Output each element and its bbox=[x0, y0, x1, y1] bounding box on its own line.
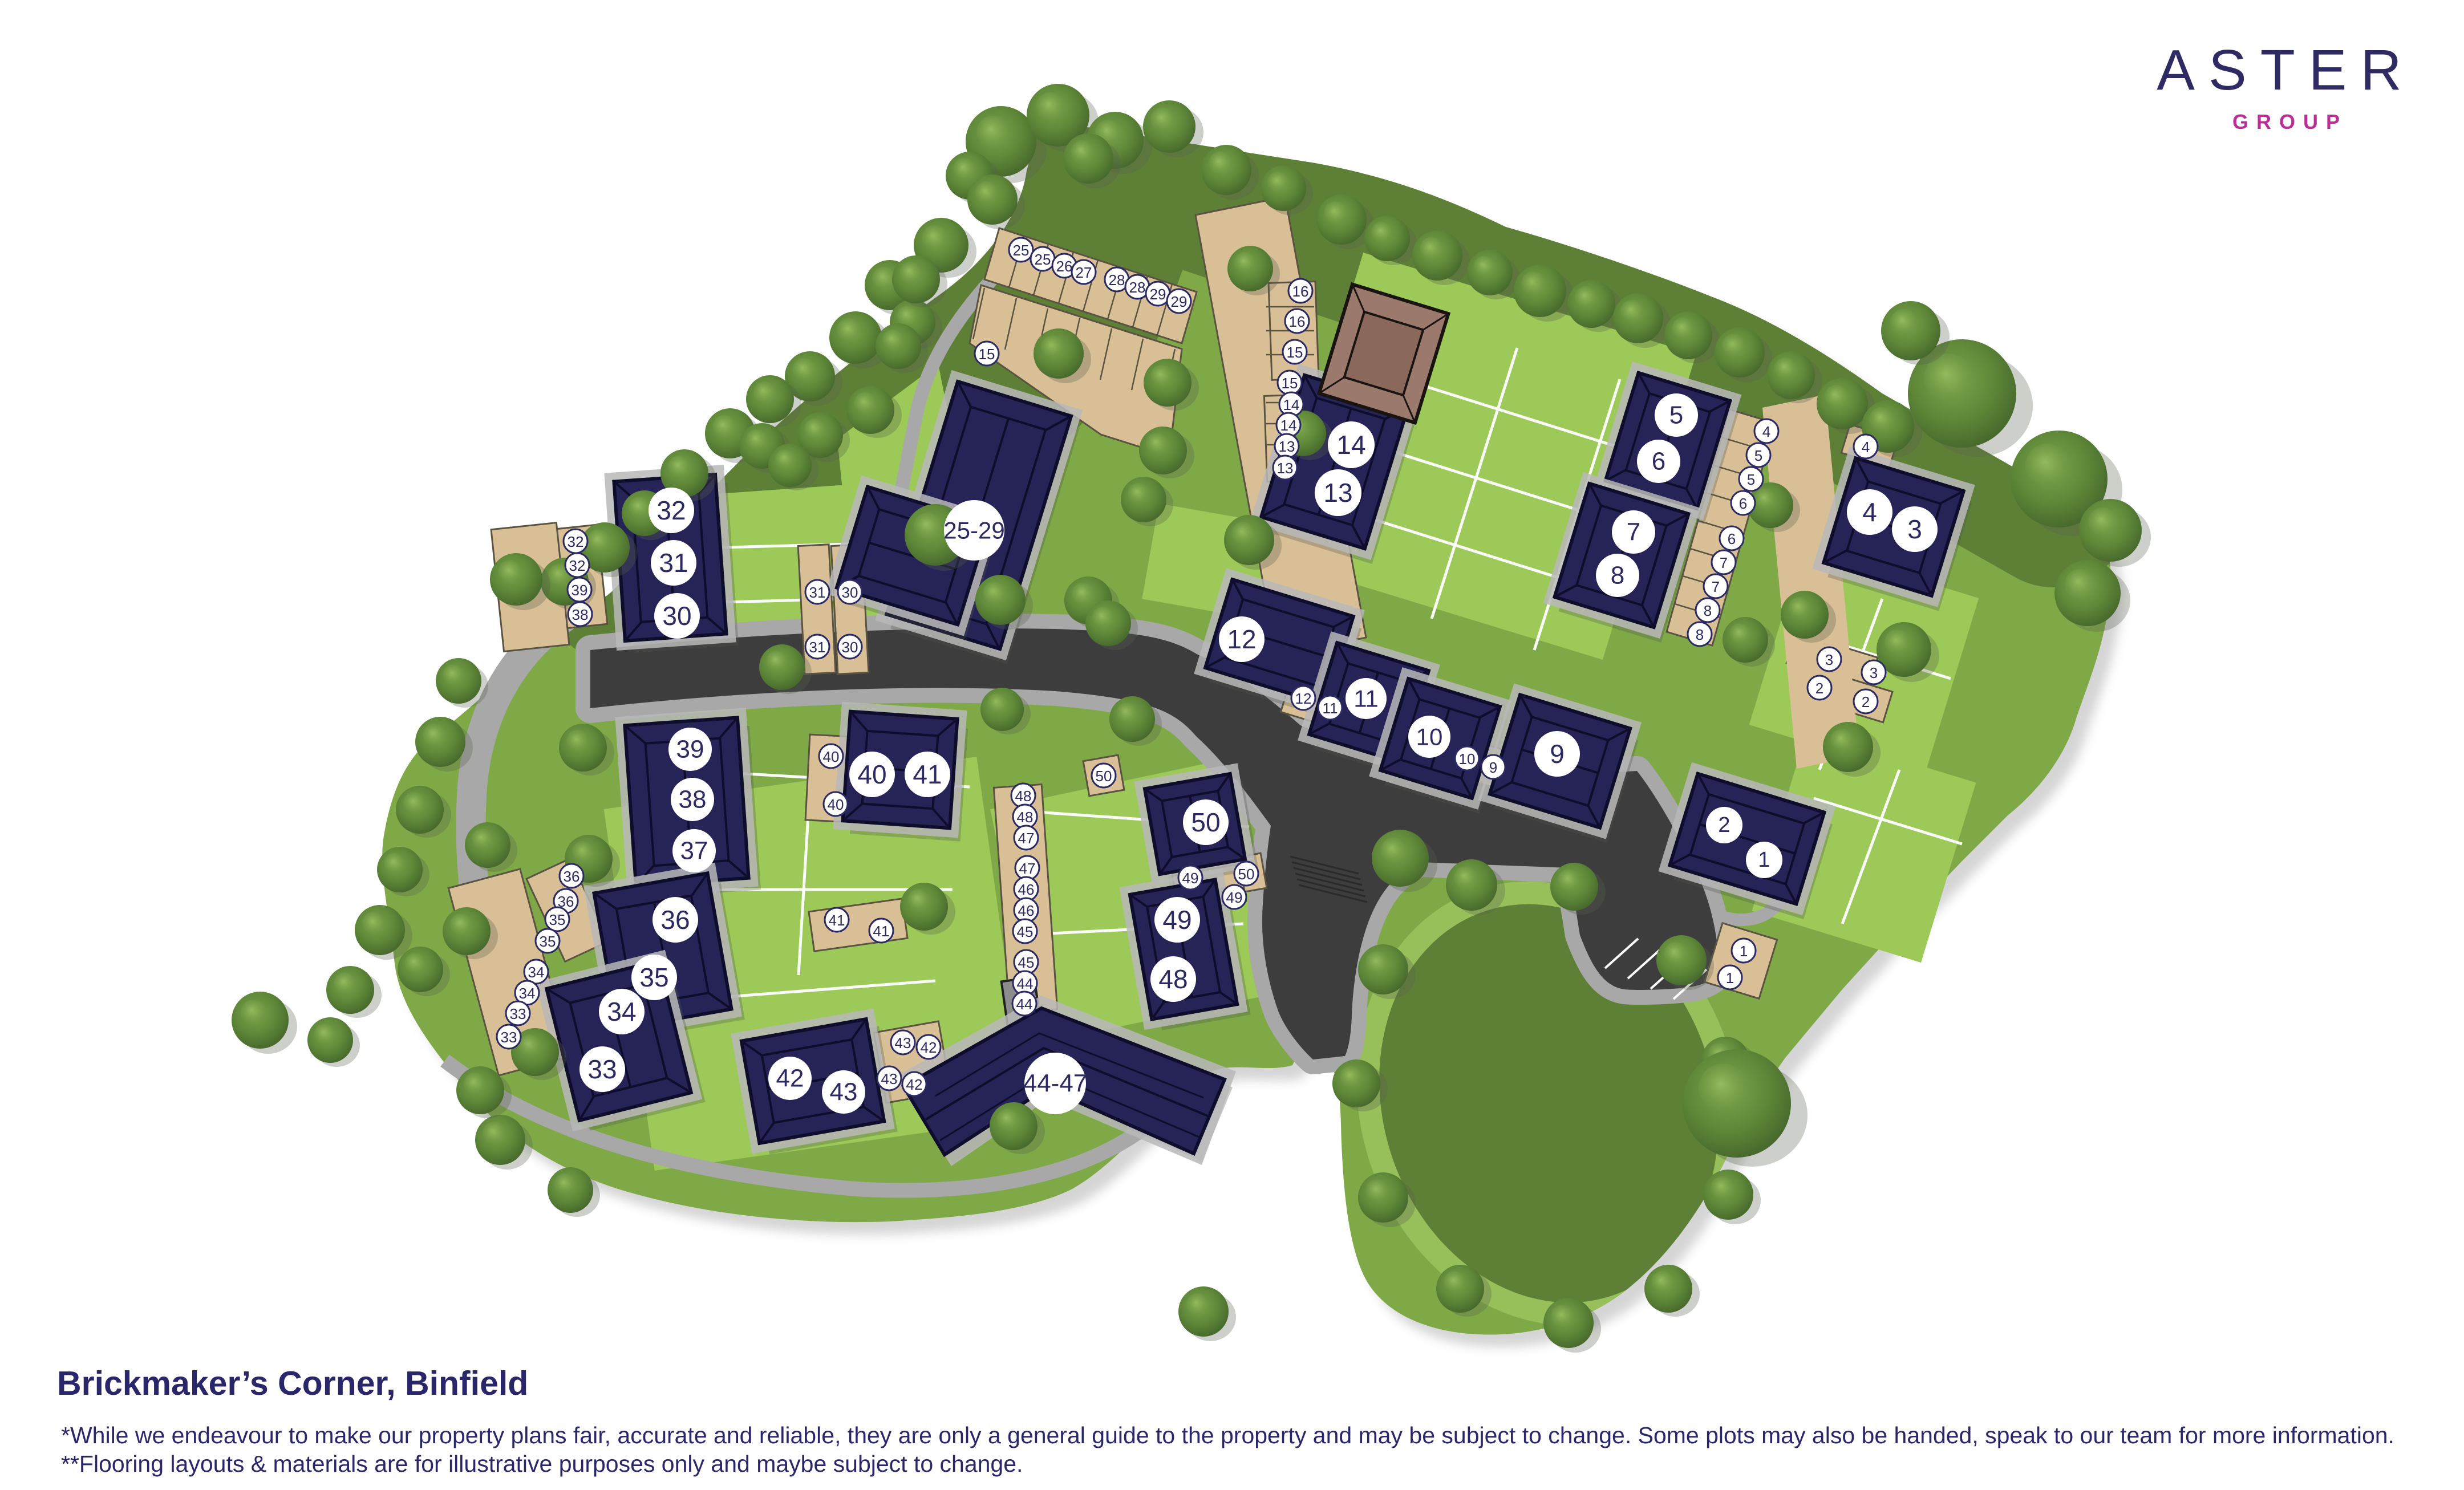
svg-text:30: 30 bbox=[842, 584, 858, 601]
svg-text:ASTER: ASTER bbox=[2157, 38, 2415, 102]
svg-text:3: 3 bbox=[1825, 651, 1833, 668]
svg-text:8: 8 bbox=[1611, 562, 1624, 590]
svg-text:37: 37 bbox=[680, 837, 708, 865]
svg-text:32: 32 bbox=[569, 557, 586, 574]
svg-text:10: 10 bbox=[1459, 750, 1476, 768]
svg-text:33: 33 bbox=[510, 1005, 526, 1022]
svg-text:29: 29 bbox=[1171, 293, 1188, 310]
svg-text:13: 13 bbox=[1323, 478, 1352, 508]
svg-text:6: 6 bbox=[1739, 495, 1747, 512]
svg-text:39: 39 bbox=[676, 736, 704, 764]
svg-text:31: 31 bbox=[809, 639, 826, 656]
svg-text:26: 26 bbox=[1056, 258, 1073, 275]
svg-text:48: 48 bbox=[1015, 787, 1032, 805]
svg-text:14: 14 bbox=[1283, 396, 1300, 413]
svg-text:33: 33 bbox=[587, 1054, 617, 1084]
svg-text:30: 30 bbox=[842, 639, 858, 656]
svg-text:43: 43 bbox=[830, 1078, 858, 1106]
svg-text:46: 46 bbox=[1018, 902, 1035, 919]
svg-text:49: 49 bbox=[1162, 905, 1192, 935]
svg-text:16: 16 bbox=[1289, 313, 1306, 330]
svg-text:31: 31 bbox=[809, 584, 826, 601]
svg-text:47: 47 bbox=[1018, 830, 1035, 847]
svg-text:35: 35 bbox=[549, 911, 566, 928]
svg-text:40: 40 bbox=[857, 760, 886, 789]
svg-text:36: 36 bbox=[564, 868, 580, 885]
svg-text:41: 41 bbox=[913, 760, 942, 789]
svg-text:25-29: 25-29 bbox=[943, 517, 1004, 544]
svg-text:4: 4 bbox=[1862, 439, 1870, 456]
svg-text:31: 31 bbox=[659, 548, 688, 578]
svg-text:49: 49 bbox=[1182, 870, 1199, 887]
svg-text:47: 47 bbox=[1019, 860, 1036, 877]
svg-text:9: 9 bbox=[1550, 739, 1565, 769]
svg-text:14: 14 bbox=[1280, 417, 1297, 434]
svg-text:38: 38 bbox=[679, 786, 707, 814]
svg-text:7: 7 bbox=[1720, 554, 1728, 571]
svg-text:2: 2 bbox=[1862, 693, 1870, 711]
svg-text:40: 40 bbox=[823, 748, 840, 765]
svg-text:11: 11 bbox=[1353, 685, 1379, 712]
svg-text:46: 46 bbox=[1018, 881, 1035, 898]
svg-text:36: 36 bbox=[660, 905, 690, 935]
svg-text:44: 44 bbox=[1017, 975, 1034, 992]
svg-text:25: 25 bbox=[1013, 242, 1030, 259]
svg-text:*While we endeavour to make ou: *While we endeavour to make our property… bbox=[61, 1422, 2394, 1448]
svg-text:6: 6 bbox=[1652, 448, 1665, 476]
svg-text:45: 45 bbox=[1017, 923, 1034, 940]
svg-text:12: 12 bbox=[1295, 690, 1312, 707]
svg-text:15: 15 bbox=[1282, 375, 1298, 392]
svg-text:50: 50 bbox=[1096, 768, 1112, 785]
svg-text:8: 8 bbox=[1704, 602, 1712, 619]
svg-text:25: 25 bbox=[1035, 251, 1051, 268]
svg-text:3: 3 bbox=[1870, 664, 1878, 681]
svg-text:30: 30 bbox=[662, 601, 691, 631]
svg-text:6: 6 bbox=[1728, 530, 1736, 547]
svg-text:35: 35 bbox=[639, 963, 668, 992]
svg-text:Brickmaker’s Corner, Binfield: Brickmaker’s Corner, Binfield bbox=[57, 1365, 528, 1402]
svg-text:8: 8 bbox=[1696, 626, 1704, 643]
svg-text:1: 1 bbox=[1740, 943, 1748, 960]
svg-text:42: 42 bbox=[776, 1065, 804, 1093]
svg-text:40: 40 bbox=[828, 796, 844, 813]
svg-text:5: 5 bbox=[1754, 447, 1762, 464]
svg-text:34: 34 bbox=[607, 997, 636, 1026]
svg-text:42: 42 bbox=[921, 1039, 937, 1056]
svg-text:41: 41 bbox=[829, 912, 845, 929]
svg-text:33: 33 bbox=[501, 1029, 517, 1046]
svg-text:28: 28 bbox=[1109, 271, 1125, 289]
svg-text:10: 10 bbox=[1416, 724, 1443, 750]
svg-text:38: 38 bbox=[572, 606, 589, 623]
svg-text:48: 48 bbox=[1158, 964, 1188, 994]
svg-text:1: 1 bbox=[1726, 969, 1734, 986]
svg-text:4: 4 bbox=[1862, 497, 1877, 527]
svg-text:45: 45 bbox=[1018, 954, 1035, 971]
svg-text:13: 13 bbox=[1279, 438, 1295, 455]
svg-text:29: 29 bbox=[1150, 286, 1166, 303]
svg-text:41: 41 bbox=[873, 923, 890, 940]
svg-text:43: 43 bbox=[881, 1070, 898, 1087]
svg-text:48: 48 bbox=[1017, 809, 1034, 826]
svg-text:4: 4 bbox=[1762, 423, 1770, 440]
svg-text:16: 16 bbox=[1292, 283, 1309, 300]
svg-text:5: 5 bbox=[1669, 401, 1683, 429]
svg-text:50: 50 bbox=[1191, 807, 1220, 837]
svg-text:43: 43 bbox=[895, 1034, 911, 1051]
svg-text:39: 39 bbox=[572, 582, 588, 599]
svg-text:34: 34 bbox=[528, 964, 545, 981]
svg-text:**Flooring layouts & materials: **Flooring layouts & materials are for i… bbox=[61, 1451, 1023, 1477]
svg-text:5: 5 bbox=[1747, 471, 1755, 488]
svg-text:7: 7 bbox=[1712, 578, 1720, 595]
svg-text:13: 13 bbox=[1277, 460, 1294, 477]
svg-text:15: 15 bbox=[979, 346, 995, 363]
svg-text:32: 32 bbox=[568, 533, 584, 550]
svg-text:11: 11 bbox=[1323, 700, 1338, 717]
svg-text:1: 1 bbox=[1758, 848, 1770, 872]
svg-text:15: 15 bbox=[1287, 344, 1303, 361]
svg-text:3: 3 bbox=[1907, 514, 1922, 544]
svg-text:GROUP: GROUP bbox=[2232, 110, 2348, 133]
svg-text:9: 9 bbox=[1489, 759, 1497, 776]
svg-text:12: 12 bbox=[1227, 624, 1256, 654]
svg-text:32: 32 bbox=[656, 496, 686, 525]
svg-text:14: 14 bbox=[1336, 430, 1365, 460]
svg-text:49: 49 bbox=[1226, 889, 1243, 906]
svg-text:35: 35 bbox=[540, 933, 556, 950]
svg-text:50: 50 bbox=[1238, 866, 1255, 883]
svg-text:2: 2 bbox=[1815, 680, 1823, 697]
svg-text:44-47: 44-47 bbox=[1023, 1070, 1088, 1098]
svg-text:27: 27 bbox=[1076, 264, 1092, 281]
svg-text:2: 2 bbox=[1718, 813, 1730, 837]
svg-text:42: 42 bbox=[906, 1076, 923, 1093]
svg-text:28: 28 bbox=[1129, 279, 1146, 296]
svg-text:44: 44 bbox=[1016, 996, 1033, 1013]
svg-text:34: 34 bbox=[519, 985, 536, 1002]
svg-text:7: 7 bbox=[1627, 518, 1640, 546]
